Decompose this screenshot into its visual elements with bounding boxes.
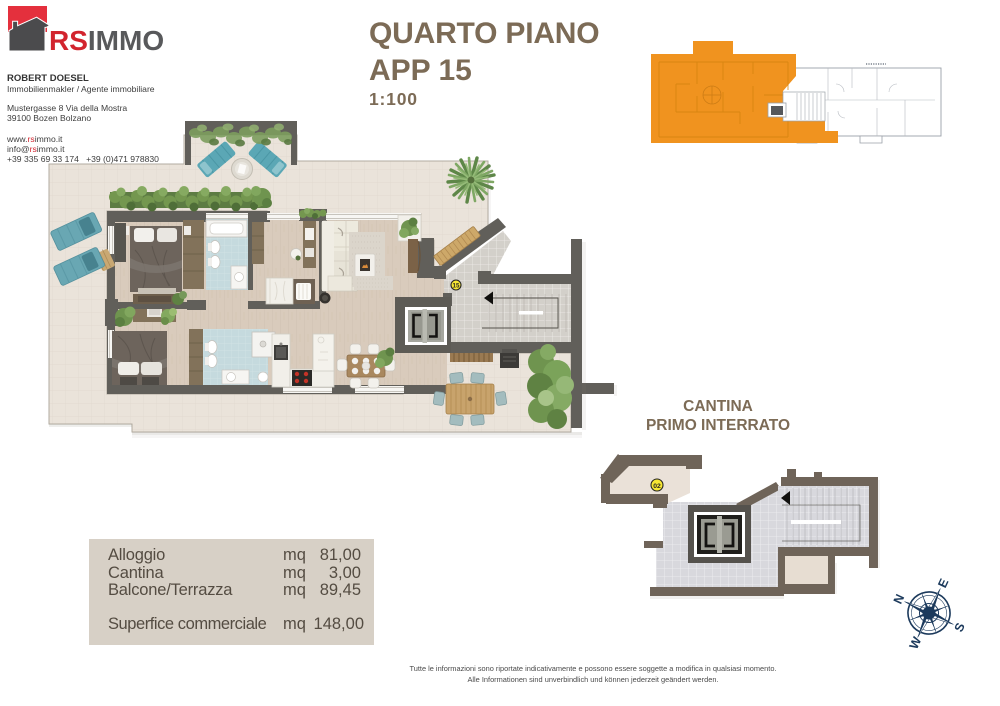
svg-text:02: 02 <box>653 483 661 490</box>
svg-text:E: E <box>935 577 951 590</box>
svg-text:N: N <box>891 592 908 606</box>
svg-text:15: 15 <box>453 283 460 290</box>
svg-text:W: W <box>907 635 925 652</box>
svg-text:S: S <box>952 621 968 634</box>
